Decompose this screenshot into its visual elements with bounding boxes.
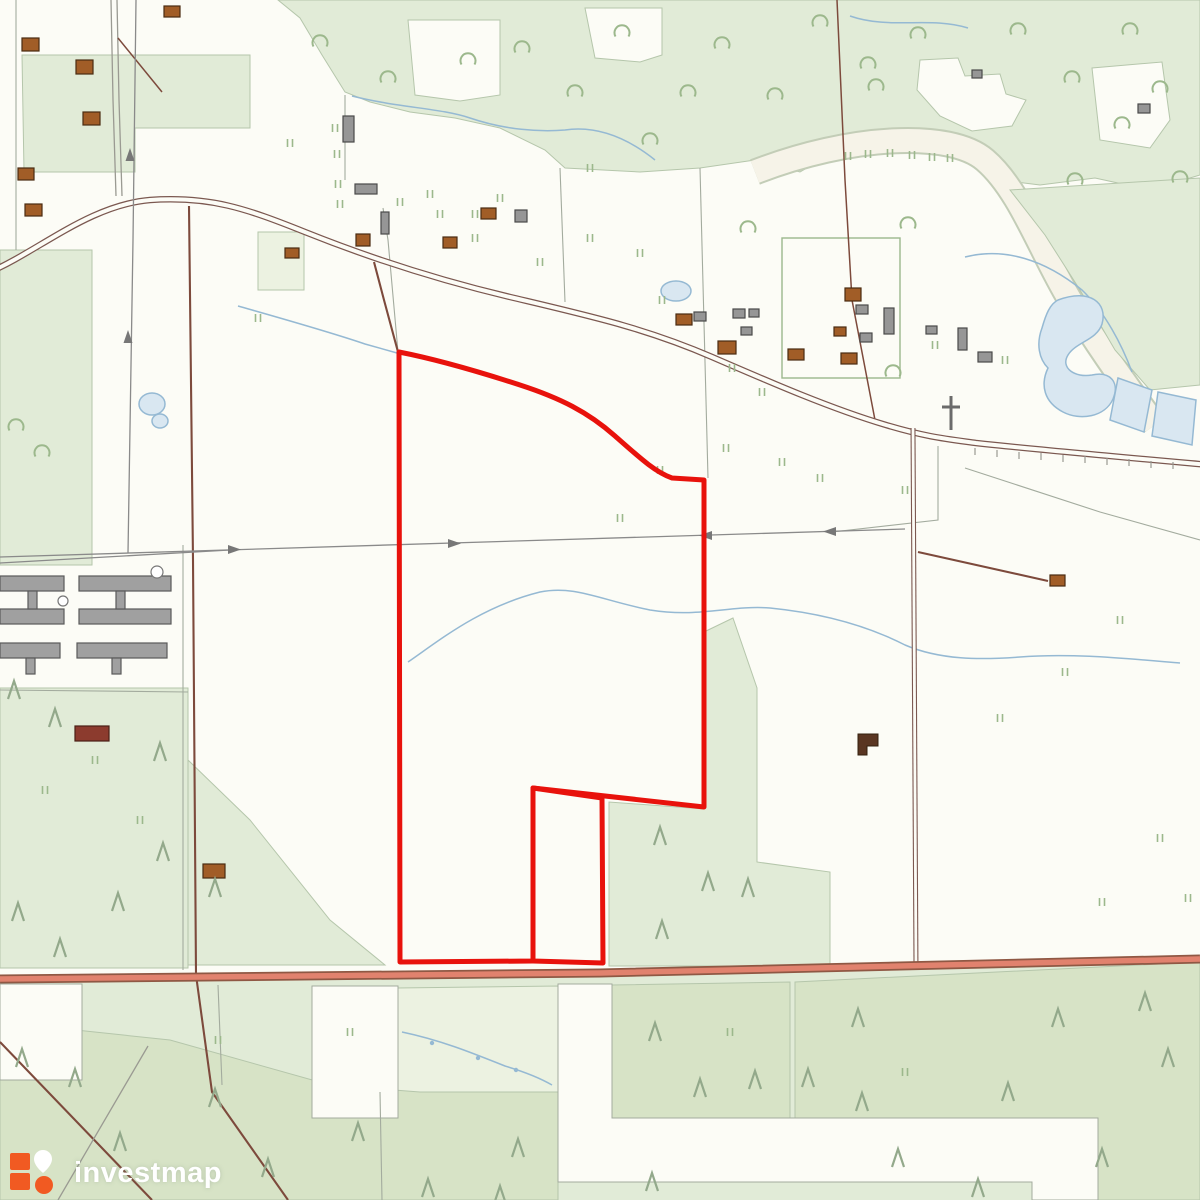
investmap-logo[interactable]: investmap <box>10 1150 222 1196</box>
farm-barracks <box>0 566 171 674</box>
logo-dot <box>35 1176 53 1194</box>
logo-square-bottom <box>10 1173 30 1190</box>
logo-wordmark: investmap <box>74 1157 222 1190</box>
map-pin-icon <box>34 1150 52 1173</box>
logo-square-top <box>10 1153 30 1170</box>
map-canvas[interactable]: investmap <box>0 0 1200 1200</box>
investmap-logo-icon <box>10 1150 62 1196</box>
topographic-map <box>0 0 1200 1200</box>
